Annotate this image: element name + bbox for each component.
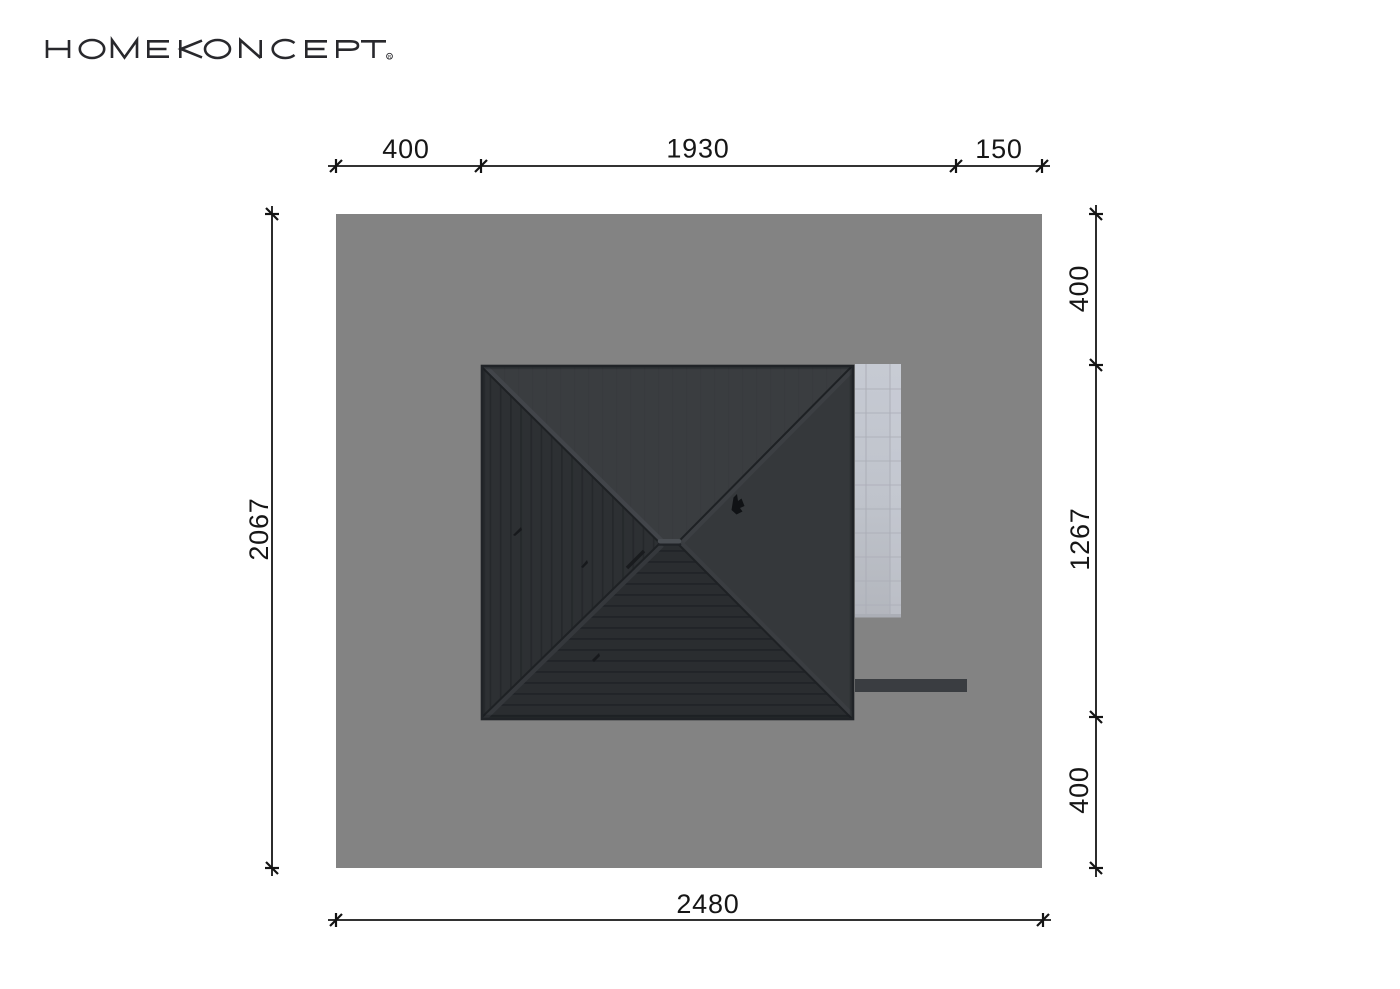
svg-text:2480: 2480 (676, 889, 739, 919)
svg-text:400: 400 (1064, 766, 1094, 813)
svg-text:2067: 2067 (244, 497, 274, 560)
svg-text:1930: 1930 (666, 134, 729, 164)
svg-text:1267: 1267 (1065, 507, 1095, 570)
svg-text:400: 400 (382, 134, 429, 164)
svg-text:400: 400 (1064, 265, 1094, 312)
svg-text:150: 150 (975, 134, 1022, 164)
